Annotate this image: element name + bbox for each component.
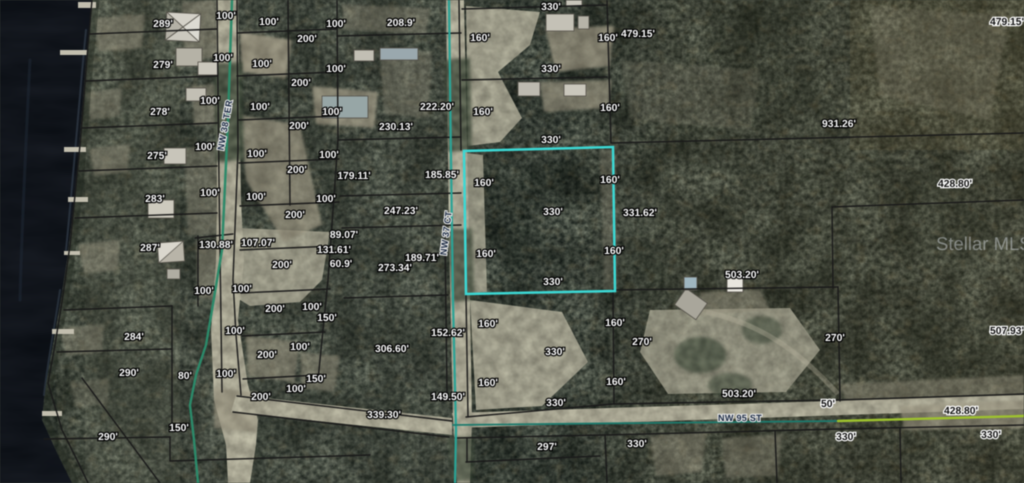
svg-text:160': 160': [474, 178, 494, 189]
svg-text:100': 100': [302, 302, 322, 313]
svg-text:160': 160': [470, 33, 490, 44]
svg-text:100': 100': [216, 369, 236, 380]
svg-text:100': 100': [232, 284, 252, 295]
svg-text:200': 200': [265, 304, 285, 315]
svg-text:89.07': 89.07': [330, 230, 358, 241]
svg-text:503.20': 503.20': [725, 270, 759, 281]
svg-text:160': 160': [476, 249, 496, 260]
svg-text:100': 100': [322, 107, 342, 118]
svg-text:200': 200': [251, 392, 271, 403]
svg-text:306.60': 306.60': [375, 344, 409, 355]
svg-text:479.15': 479.15': [990, 17, 1024, 28]
svg-text:160': 160': [598, 33, 618, 44]
svg-text:100': 100': [225, 326, 245, 337]
svg-text:100': 100': [213, 53, 233, 64]
svg-text:273.34': 273.34': [378, 263, 412, 274]
svg-text:Stellar MLS: Stellar MLS: [936, 233, 1024, 254]
svg-text:230.13': 230.13': [379, 122, 413, 133]
svg-text:160': 160': [600, 175, 620, 186]
svg-text:330': 330': [546, 398, 566, 409]
svg-text:149.50': 149.50': [431, 392, 465, 403]
svg-text:160': 160': [604, 246, 624, 257]
svg-text:479.15': 479.15': [621, 29, 655, 40]
svg-text:330': 330': [543, 207, 563, 218]
svg-text:100': 100': [286, 384, 306, 395]
svg-text:279': 279': [153, 60, 173, 71]
svg-text:150': 150': [306, 374, 326, 385]
svg-text:107.07': 107.07': [241, 238, 275, 249]
svg-text:100': 100': [259, 17, 279, 28]
svg-text:160': 160': [473, 107, 493, 118]
svg-text:130.88': 130.88': [199, 240, 233, 251]
svg-text:330': 330': [541, 2, 561, 13]
svg-text:247.23': 247.23': [384, 206, 418, 217]
svg-text:931.26': 931.26': [822, 119, 856, 130]
svg-text:150': 150': [317, 313, 337, 324]
svg-text:131.61': 131.61': [317, 245, 351, 256]
svg-text:200': 200': [297, 34, 317, 45]
svg-text:278': 278': [150, 107, 170, 118]
svg-text:200': 200': [285, 210, 305, 221]
svg-text:283': 283': [145, 194, 165, 205]
svg-text:100': 100': [290, 342, 310, 353]
svg-text:507.93': 507.93': [990, 326, 1024, 337]
svg-text:160': 160': [478, 319, 498, 330]
svg-text:100': 100': [319, 150, 339, 161]
svg-text:290': 290': [98, 432, 118, 443]
svg-text:270': 270': [825, 333, 845, 344]
svg-text:150': 150': [169, 423, 189, 434]
svg-text:275': 275': [147, 151, 167, 162]
svg-text:160': 160': [478, 378, 498, 389]
svg-text:222.20': 222.20': [420, 102, 454, 113]
svg-text:179.11': 179.11': [337, 171, 370, 182]
svg-text:200': 200': [291, 78, 311, 89]
svg-text:100': 100': [195, 142, 215, 153]
svg-text:100': 100': [246, 192, 266, 203]
svg-text:200': 200': [289, 121, 309, 132]
svg-text:428.80': 428.80': [938, 179, 972, 190]
svg-text:100': 100': [200, 96, 220, 107]
svg-text:289': 289': [153, 19, 173, 30]
svg-text:100': 100': [194, 286, 214, 297]
svg-text:160': 160': [605, 318, 625, 329]
svg-text:428.80': 428.80': [944, 406, 978, 417]
svg-text:NW 95 ST: NW 95 ST: [718, 413, 762, 423]
svg-text:200': 200': [272, 260, 292, 271]
svg-text:330': 330': [836, 432, 856, 443]
svg-text:270': 270': [632, 337, 652, 348]
svg-text:330': 330': [543, 277, 563, 288]
svg-text:80': 80': [178, 371, 192, 382]
svg-text:330': 330': [981, 430, 1001, 441]
svg-text:331.62': 331.62': [623, 208, 657, 219]
svg-text:208.9': 208.9': [387, 18, 415, 29]
svg-text:100': 100': [326, 64, 346, 75]
svg-text:330': 330': [541, 135, 561, 146]
svg-text:287': 287': [140, 243, 160, 254]
svg-text:330': 330': [545, 347, 565, 358]
svg-text:60.9': 60.9': [330, 259, 353, 270]
svg-text:100': 100': [316, 194, 336, 205]
svg-text:200': 200': [287, 165, 307, 176]
svg-text:290': 290': [119, 368, 139, 379]
svg-text:50': 50': [821, 399, 835, 410]
svg-text:100': 100': [252, 59, 272, 70]
svg-text:100': 100': [216, 11, 236, 22]
svg-text:200': 200': [257, 350, 277, 361]
svg-text:100': 100': [247, 149, 267, 160]
svg-text:330': 330': [541, 64, 561, 75]
svg-text:100': 100': [326, 19, 346, 30]
svg-text:152.62': 152.62': [431, 328, 465, 339]
svg-text:160': 160': [600, 103, 620, 114]
svg-text:297': 297': [537, 442, 557, 453]
svg-text:185.85': 185.85': [425, 170, 459, 181]
svg-text:160': 160': [606, 377, 626, 388]
svg-text:100': 100': [250, 102, 270, 113]
svg-text:503.20': 503.20': [722, 389, 756, 400]
svg-text:284': 284': [124, 332, 144, 343]
svg-text:100': 100': [200, 188, 220, 199]
svg-text:339.30': 339.30': [367, 410, 401, 421]
svg-text:330': 330': [627, 439, 647, 450]
